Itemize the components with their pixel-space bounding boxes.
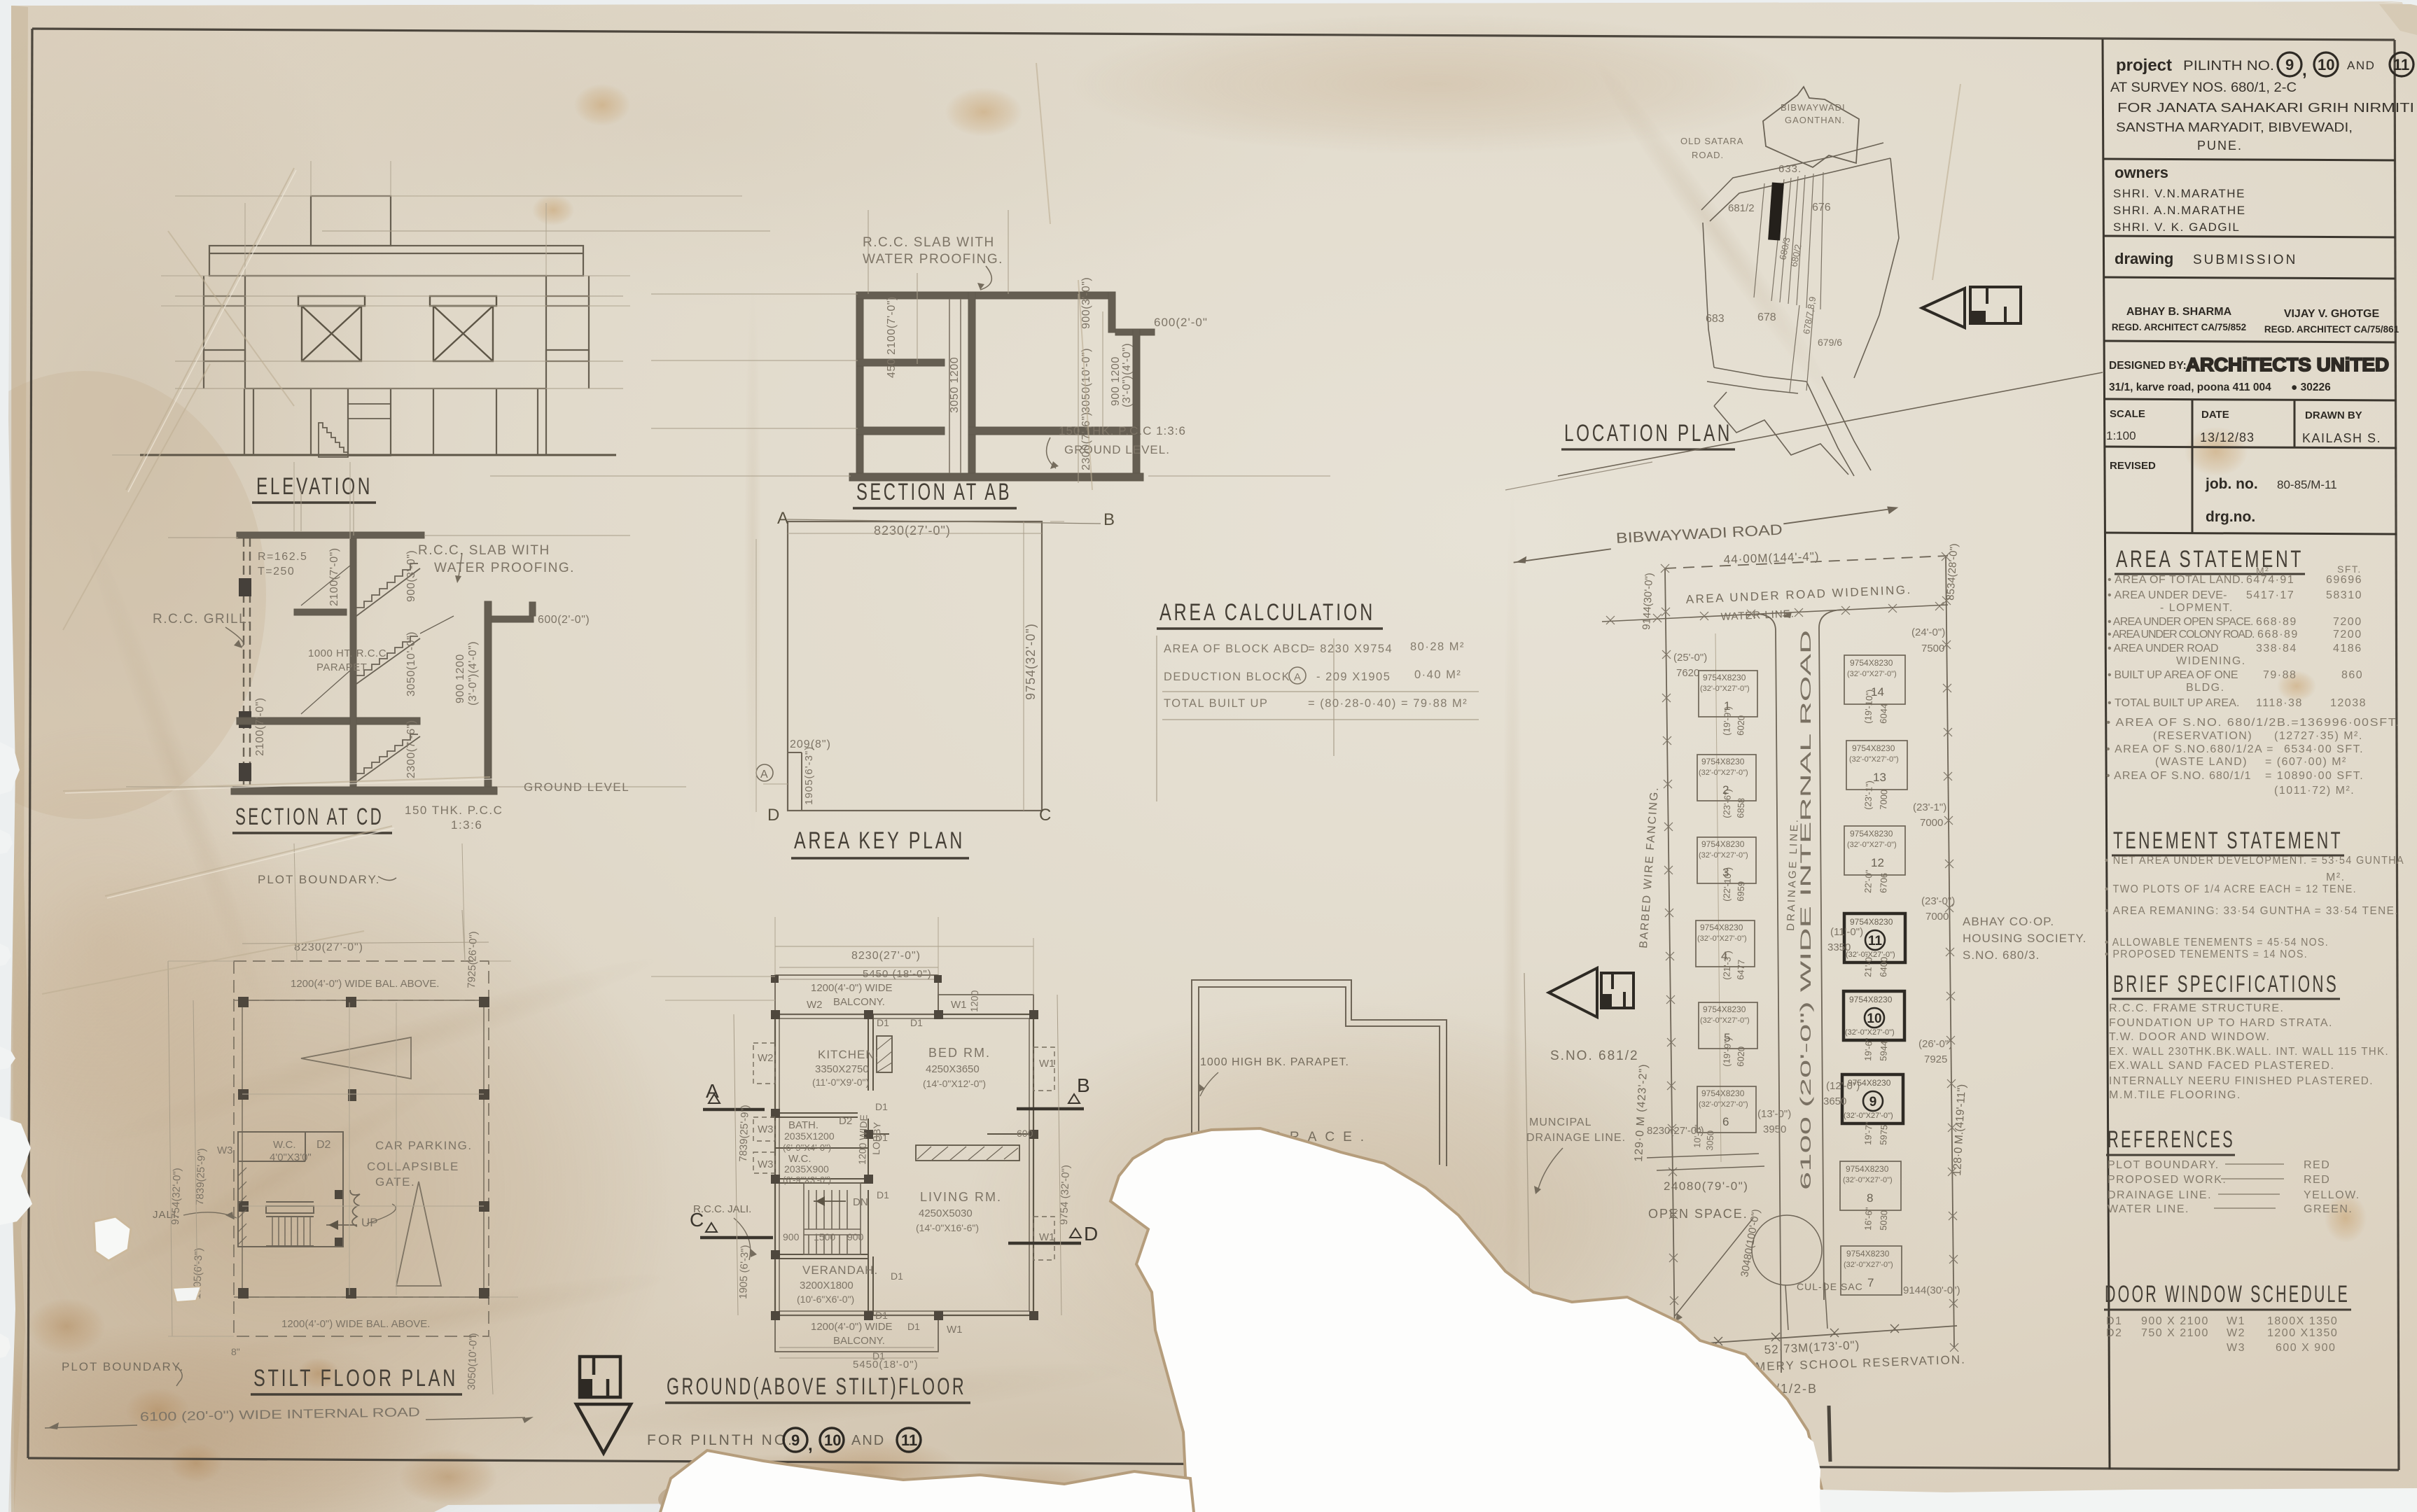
svg-text:- LOPMENT.: - LOPMENT.	[2160, 602, 2234, 614]
svg-text:job. no.: job. no.	[2205, 476, 2258, 492]
svg-text:(32'-0"X27'-0"): (32'-0"X27'-0")	[1847, 670, 1897, 678]
svg-text:79·88: 79·88	[2263, 669, 2297, 681]
svg-text:(6'-9"X3'-0"): (6'-9"X3'-0")	[783, 1175, 831, 1185]
svg-text:BALCONY.: BALCONY.	[833, 996, 885, 1008]
svg-text:7839(25'-9"): 7839(25'-9")	[737, 1105, 751, 1162]
svg-text:6100 (20'-0") WIDE INTERNAL: 6100 (20'-0") WIDE INTERNAL ROAD	[1798, 630, 1814, 1190]
svg-text:19'-7": 19'-7"	[1862, 1121, 1874, 1145]
svg-text:(6'-9"X4'-0"): (6'-9"X4'-0")	[783, 1142, 831, 1153]
svg-text:drawing: drawing	[2115, 250, 2173, 267]
svg-text:SECTION AT CD: SECTION AT CD	[235, 804, 384, 830]
svg-text:(12727·35) M².: (12727·35) M².	[2274, 730, 2363, 742]
svg-text:9754X8230: 9754X8230	[1703, 1004, 1746, 1014]
svg-text:DEDUCTION BLOCK: DEDUCTION BLOCK	[1164, 671, 1290, 683]
svg-text:1200(4'-0") WIDE: 1200(4'-0") WIDE	[811, 1321, 893, 1333]
svg-text:REGD. ARCHITECT CA/75/852: REGD. ARCHITECT CA/75/852	[2112, 322, 2246, 332]
svg-text:9754(32'-0"): 9754(32'-0")	[1024, 623, 1038, 700]
svg-text:150 THK. P.C.C: 150 THK. P.C.C	[405, 804, 503, 817]
svg-text:(32'-0"X27'-0"): (32'-0"X27'-0")	[1844, 1261, 1893, 1269]
svg-text:AND: AND	[851, 1433, 885, 1448]
svg-text:CAR PARKING.: CAR PARKING.	[375, 1139, 473, 1152]
svg-text:AREA CALCULATION: AREA CALCULATION	[1159, 599, 1375, 626]
svg-text:(23'-6"): (23'-6")	[1721, 789, 1733, 819]
svg-text:31/1, karve road, poona 411 00: 31/1, karve road, poona 411 004	[2109, 381, 2271, 393]
svg-text:600(2'-0": 600(2'-0"	[1154, 316, 1208, 329]
svg-text:150 THK. P.C.C 1:3:6: 150 THK. P.C.C 1:3:6	[1059, 424, 1186, 437]
svg-text:6044: 6044	[1878, 703, 1889, 724]
svg-text:DRAINAGE LINE.: DRAINAGE LINE.	[1526, 1132, 1626, 1144]
svg-text:FOR JANATA SAHAKARI GRIH: FOR JANATA SAHAKARI GRIH NIRMITI	[2117, 101, 2414, 115]
svg-text:4'0"X3'0": 4'0"X3'0"	[270, 1151, 312, 1163]
svg-text:MUNCIPAL: MUNCIPAL	[1529, 1116, 1592, 1128]
svg-text:SHRI. V.N.MARATHE: SHRI. V.N.MARATHE	[2113, 187, 2245, 200]
svg-text:PLOT BOUNDARY.: PLOT BOUNDARY.	[62, 1360, 184, 1373]
svg-text:10'-0": 10'-0"	[1692, 1124, 1704, 1148]
svg-text:BIBWAYWADI: BIBWAYWADI	[1781, 102, 1846, 113]
svg-text:6959: 6959	[1735, 881, 1746, 902]
svg-text:(21'-3"): (21'-3")	[1721, 951, 1733, 981]
svg-text:M.M.TILE FLOORING.: M.M.TILE FLOORING.	[2109, 1089, 2241, 1101]
svg-text:GREEN.: GREEN.	[2304, 1203, 2353, 1215]
svg-text:7200: 7200	[2333, 629, 2362, 640]
svg-text:(32'-0"X27'-0"): (32'-0"X27'-0")	[1844, 1112, 1893, 1120]
svg-text:2035X900: 2035X900	[784, 1163, 829, 1175]
svg-text:W1: W1	[947, 1324, 963, 1336]
svg-text:8: 8	[1867, 1191, 1873, 1205]
svg-text:• AREA REMANING: 33·54 GUNTHA: • AREA REMANING: 33·54 GUNTHA = 33·54 TE…	[2105, 905, 2399, 917]
svg-text:W3: W3	[758, 1123, 774, 1135]
svg-text:BLDG.: BLDG.	[2186, 682, 2225, 694]
svg-text:W3: W3	[758, 1158, 774, 1170]
svg-text:W1: W1	[2227, 1315, 2245, 1327]
svg-text:(23'-1"): (23'-1")	[1862, 780, 1874, 811]
svg-text:TENEMENT STATEMENT: TENEMENT STATEMENT	[2113, 827, 2343, 854]
svg-text:AND: AND	[2347, 59, 2375, 72]
svg-text:9754X8230: 9754X8230	[1846, 1164, 1889, 1174]
svg-text:- 209 X1905: - 209 X1905	[1316, 671, 1391, 683]
svg-text:VIJAY V. GHOTGE: VIJAY V. GHOTGE	[2284, 308, 2380, 320]
svg-text:AT SURVEY NOS. 680/1, 2-C: AT SURVEY NOS. 680/1, 2-C	[2110, 80, 2297, 95]
svg-text:WATER LINE.: WATER LINE.	[2108, 1203, 2189, 1215]
svg-text:= 8230 X9754: = 8230 X9754	[1308, 643, 1393, 655]
svg-text:900 X 2100: 900 X 2100	[2141, 1315, 2209, 1327]
svg-text:(19'-9"): (19'-9")	[1721, 706, 1733, 736]
svg-text:= (607·00) M²: = (607·00) M²	[2265, 756, 2347, 768]
svg-text:ABHAY CO·OP.: ABHAY CO·OP.	[1963, 915, 2054, 928]
svg-text:S.NO. 681/2: S.NO. 681/2	[1550, 1049, 1639, 1063]
svg-text:W2: W2	[807, 999, 823, 1011]
svg-text:(14'-0"X12'-0"): (14'-0"X12'-0")	[923, 1078, 986, 1089]
svg-text:OPEN SPACE.: OPEN SPACE.	[1648, 1207, 1748, 1221]
svg-text:3350: 3350	[1827, 941, 1851, 953]
svg-text:5450(18'-0"): 5450(18'-0")	[853, 1359, 919, 1371]
svg-text:(11'-0"): (11'-0")	[1830, 926, 1863, 938]
svg-text:24080(79'-0"): 24080(79'-0")	[1664, 1179, 1748, 1193]
svg-text:9754X8230: 9754X8230	[1703, 673, 1746, 682]
svg-text:2035X1200: 2035X1200	[784, 1130, 835, 1142]
svg-text:9754X8230: 9754X8230	[1701, 839, 1745, 849]
svg-text:A: A	[1294, 671, 1301, 683]
svg-text:PARAPET: PARAPET	[316, 661, 367, 673]
svg-text:(13'-0"): (13'-0")	[1757, 1108, 1791, 1120]
svg-text:SUBMISSION: SUBMISSION	[2193, 253, 2297, 267]
svg-text:13: 13	[1873, 771, 1886, 784]
svg-text:7000: 7000	[1920, 817, 1943, 829]
svg-text:7500: 7500	[1921, 643, 1944, 654]
svg-text:DOOR WINDOW SCHEDULE: DOOR WINDOW SCHEDULE	[2105, 1281, 2350, 1308]
svg-text:21'-0": 21'-0"	[1862, 953, 1874, 977]
svg-text:D1: D1	[875, 1310, 888, 1321]
svg-text:16'-6": 16'-6"	[1862, 1207, 1874, 1231]
svg-text:5417·17: 5417·17	[2246, 589, 2294, 601]
svg-text:LOCATION PLAN: LOCATION PLAN	[1564, 420, 1732, 447]
svg-text:B: B	[1103, 510, 1115, 529]
svg-text:(32'-0"X27'-0"): (32'-0"X27'-0")	[1699, 851, 1748, 860]
svg-text:T=250: T=250	[258, 566, 295, 577]
svg-text:REFERENCES: REFERENCES	[2108, 1126, 2235, 1153]
svg-text:(24'-0"): (24'-0")	[1911, 626, 1945, 638]
svg-text:11: 11	[1868, 934, 1883, 948]
svg-text:1200 WIDE: 1200 WIDE	[856, 1114, 869, 1165]
svg-text:5030: 5030	[1878, 1210, 1889, 1231]
svg-text:6858: 6858	[1735, 797, 1746, 818]
svg-text:6400: 6400	[1878, 956, 1889, 977]
svg-text:D2: D2	[316, 1139, 331, 1151]
svg-text:(12'-0"): (12'-0")	[1826, 1080, 1860, 1092]
svg-text:7925: 7925	[1924, 1053, 1947, 1065]
svg-text:D1: D1	[891, 1270, 903, 1282]
svg-text:58310: 58310	[2326, 589, 2362, 601]
svg-text:ELEVATION: ELEVATION	[256, 473, 372, 500]
svg-text:668·89: 668·89	[2256, 616, 2297, 628]
svg-text:• TWO PLOTS OF 1/4 ACRE EACH: • TWO PLOTS OF 1/4 ACRE EACH = 12 TENE.	[2105, 883, 2357, 895]
svg-text:4186: 4186	[2333, 643, 2362, 654]
svg-text:9: 9	[2285, 56, 2294, 73]
svg-text:DRAWN BY: DRAWN BY	[2305, 409, 2362, 421]
svg-text:1200(4'-0") WIDE BAL. ABOVE.: 1200(4'-0") WIDE BAL. ABOVE.	[281, 1318, 430, 1330]
svg-text:D1: D1	[2106, 1315, 2122, 1327]
svg-text:1800X 1350: 1800X 1350	[2267, 1315, 2338, 1327]
svg-text:2100(7'-0"): 2100(7'-0")	[328, 547, 340, 606]
svg-text:W1: W1	[1039, 1058, 1055, 1070]
svg-text:10: 10	[1867, 1011, 1881, 1026]
svg-text:INTERNALLY NEERU FINISHED PLAS: INTERNALLY NEERU FINISHED PLASTERED.	[2109, 1075, 2374, 1087]
svg-text:W.C.: W.C.	[273, 1139, 296, 1151]
svg-text:676: 676	[1812, 202, 1831, 213]
svg-text:9754X8230: 9754X8230	[1701, 757, 1745, 766]
svg-text:(14'-0"X16'-6"): (14'-0"X16'-6")	[916, 1222, 979, 1233]
svg-text:9754(32'-0"): 9754(32'-0")	[169, 1168, 183, 1225]
svg-text:3950: 3950	[1763, 1123, 1786, 1135]
svg-text:R.C.C. SLAB WITH: R.C.C. SLAB WITH	[863, 235, 995, 250]
svg-text:ABHAY B. SHARMA: ABHAY B. SHARMA	[2126, 306, 2232, 318]
svg-text:900(3'-0"): 900(3'-0")	[1080, 277, 1092, 329]
svg-text:1905 (6'-3"): 1905 (6'-3")	[737, 1245, 751, 1299]
svg-text:• TOTAL BUILT UP AREA.: • TOTAL BUILT UP AREA.	[2108, 697, 2241, 709]
svg-text:BALCONY.: BALCONY.	[833, 1335, 885, 1347]
svg-text:(11'-0"X9'-0"): (11'-0"X9'-0")	[812, 1077, 869, 1088]
svg-text:1200: 1200	[968, 990, 980, 1012]
svg-text:2100(7'-0"): 2100(7'-0")	[254, 697, 266, 756]
svg-text:6477: 6477	[1735, 959, 1746, 980]
svg-text:2300(7'-6"): 2300(7'-6")	[405, 720, 417, 778]
svg-text:AREA OF BLOCK ABCD: AREA OF BLOCK ABCD	[1164, 643, 1310, 655]
svg-text:R.C.C. FRAME STRUCTURE.: R.C.C. FRAME STRUCTURE.	[2109, 1002, 2285, 1014]
svg-text:633.: 633.	[1778, 163, 1802, 175]
svg-text:W1: W1	[1039, 1231, 1055, 1243]
svg-text:W3: W3	[2227, 1342, 2245, 1354]
svg-text:PILINTH NO.: PILINTH NO.	[2183, 59, 2274, 73]
svg-text:(10'-6"X6'-0"): (10'-6"X6'-0")	[797, 1294, 854, 1305]
svg-text:11: 11	[2393, 56, 2409, 73]
svg-text:SECTION AT AB: SECTION AT AB	[856, 479, 1012, 505]
svg-text:1200(4'-0") WIDE: 1200(4'-0") WIDE	[811, 982, 893, 994]
svg-text:7925(26'-0"): 7925(26'-0")	[466, 931, 480, 988]
svg-text:SFT.: SFT.	[2337, 563, 2362, 575]
svg-text:9754X8230: 9754X8230	[1701, 1088, 1745, 1098]
svg-text:D2: D2	[2106, 1327, 2122, 1339]
svg-text:M².: M².	[2326, 871, 2346, 883]
svg-text:6474·91: 6474·91	[2246, 574, 2294, 586]
svg-text:,: ,	[2302, 61, 2307, 80]
svg-text:FOR PILNTH NO.: FOR PILNTH NO.	[647, 1432, 794, 1448]
svg-text:683: 683	[1706, 313, 1725, 325]
svg-text:1200 X1350: 1200 X1350	[2267, 1327, 2338, 1339]
svg-text:ARCHiTECTS UNiTED: ARCHiTECTS UNiTED	[2186, 354, 2389, 375]
svg-text:(32'-0"X27'-0"): (32'-0"X27'-0")	[1847, 841, 1897, 849]
svg-text:900: 900	[847, 1231, 864, 1242]
svg-text:PLOT BOUNDARY.: PLOT BOUNDARY.	[2108, 1159, 2220, 1171]
svg-text:750 X 2100: 750 X 2100	[2141, 1327, 2209, 1339]
svg-text:9754X8230: 9754X8230	[1846, 1249, 1890, 1259]
svg-text:(RESERVATION): (RESERVATION)	[2153, 730, 2252, 742]
svg-text:• AREA UNDER OPEN SPACE.: • AREA UNDER OPEN SPACE.	[2108, 616, 2255, 628]
svg-text:(19'-9"): (19'-9")	[1721, 1037, 1733, 1067]
svg-text:HOUSING SOCIETY.: HOUSING SOCIETY.	[1963, 932, 2087, 945]
svg-text:LOBBY: LOBBY	[870, 1121, 883, 1155]
svg-text:BRIEF SPECIFICATIONS: BRIEF SPECIFICATIONS	[2113, 971, 2339, 997]
svg-text:C: C	[690, 1209, 704, 1231]
svg-text:8": 8"	[231, 1346, 240, 1357]
svg-text:7: 7	[1867, 1276, 1874, 1289]
svg-text:4250X5030: 4250X5030	[919, 1207, 973, 1219]
svg-text:STILT FLOOR PLAN: STILT FLOOR PLAN	[253, 1365, 458, 1392]
svg-text:(WASTE LAND): (WASTE LAND)	[2155, 756, 2248, 768]
svg-text:• BUILT UP AREA OF ONE: • BUILT UP AREA OF ONE	[2108, 669, 2239, 681]
svg-text:900 1200: 900 1200	[1110, 356, 1122, 406]
svg-text:5944: 5944	[1878, 1040, 1889, 1061]
svg-text:D1: D1	[875, 1101, 888, 1112]
svg-text:9754X8230: 9754X8230	[1850, 658, 1893, 668]
svg-text:D1: D1	[877, 1189, 889, 1200]
svg-text:W2: W2	[2227, 1327, 2245, 1339]
svg-text:3050 1200: 3050 1200	[949, 357, 961, 413]
svg-text:SHRI. V. K. GADGIL: SHRI. V. K. GADGIL	[2113, 220, 2240, 234]
svg-text:W1: W1	[951, 999, 967, 1011]
svg-text:• NET AREA UNDER DEVELOPMENT.: • NET AREA UNDER DEVELOPMENT. = 53·54 GU…	[2105, 855, 2404, 867]
svg-text:5450 (18'-0"): 5450 (18'-0")	[863, 968, 932, 980]
svg-text:● 30226: ● 30226	[2291, 381, 2331, 393]
svg-text:1500: 1500	[814, 1231, 835, 1242]
svg-text:3050: 3050	[1704, 1130, 1715, 1151]
svg-text:B: B	[1077, 1074, 1090, 1096]
svg-text:DESIGNED BY:: DESIGNED BY:	[2109, 360, 2187, 372]
svg-text:(22'-10"): (22'-10")	[1721, 867, 1734, 902]
svg-text:6020: 6020	[1735, 715, 1746, 736]
svg-text:GAONTHAN.: GAONTHAN.	[1785, 115, 1845, 125]
svg-text:8230(27'-0"): 8230(27'-0")	[851, 950, 921, 962]
svg-text:7000: 7000	[1925, 911, 1949, 923]
svg-text:9754X8230: 9754X8230	[1700, 923, 1743, 932]
svg-text:DRAINAGE LINE.: DRAINAGE LINE.	[2108, 1189, 2212, 1201]
svg-text:RED: RED	[2304, 1159, 2330, 1171]
svg-text:R.C.C. GRILL.: R.C.C. GRILL.	[153, 612, 252, 626]
svg-text:EX. WALL 230THK.BK.WALL. INT.: EX. WALL 230THK.BK.WALL. INT. WALL 115 T…	[2109, 1046, 2389, 1058]
svg-text:,: ,	[808, 1436, 813, 1455]
svg-text:5975: 5975	[1878, 1124, 1889, 1145]
svg-text:1:3:6: 1:3:6	[451, 818, 482, 832]
svg-text:9: 9	[791, 1431, 800, 1449]
svg-text:10: 10	[2318, 56, 2334, 73]
svg-text:(23'-1"): (23'-1")	[1913, 801, 1946, 813]
svg-text:FOUNDATION UP TO HARD STRATA.: FOUNDATION UP TO HARD STRATA.	[2109, 1017, 2333, 1029]
svg-text:DATE: DATE	[2201, 409, 2229, 421]
svg-text:860: 860	[2341, 669, 2363, 681]
svg-text:BED RM.: BED RM.	[928, 1046, 991, 1060]
svg-text:RED: RED	[2304, 1174, 2330, 1186]
svg-text:3650: 3650	[1823, 1095, 1846, 1107]
svg-text:600: 600	[1017, 1128, 1033, 1139]
svg-text:7000: 7000	[1878, 789, 1889, 810]
svg-text:1000 HT. R.C.C: 1000 HT. R.C.C	[308, 647, 386, 659]
svg-text:WIDENING.: WIDENING.	[2176, 655, 2246, 667]
svg-text:600(2'-0"): 600(2'-0")	[538, 614, 590, 626]
svg-text:A: A	[777, 509, 788, 528]
svg-text:11: 11	[901, 1431, 917, 1449]
svg-text:679/6: 679/6	[1818, 337, 1842, 348]
svg-text:D: D	[767, 806, 779, 825]
svg-text:3050(10'-0"): 3050(10'-0")	[466, 1333, 480, 1390]
svg-text:• AREA OF S.NO. 680/1/1: • AREA OF S.NO. 680/1/1	[2106, 770, 2252, 782]
svg-text:VERANDAH.: VERANDAH.	[802, 1263, 878, 1277]
svg-text:(1011·72) M².: (1011·72) M².	[2274, 785, 2355, 797]
svg-text:TOTAL BUILT UP: TOTAL BUILT UP	[1164, 697, 1268, 710]
svg-text:• AREA OF S.NO.680/1/2A =: • AREA OF S.NO.680/1/2A =	[2106, 743, 2274, 755]
svg-text:WATER PROOFING.: WATER PROOFING.	[434, 561, 575, 575]
svg-text:• AREA UNDER COLONY ROAD.: • AREA UNDER COLONY ROAD.	[2108, 629, 2256, 640]
svg-text:• ALLOWABLE TENEMENTS = 45·54: • ALLOWABLE TENEMENTS = 45·54 NOS.	[2105, 937, 2329, 948]
svg-text:3200X1800: 3200X1800	[800, 1280, 854, 1291]
svg-text:R.C.C. SLAB WITH: R.C.C. SLAB WITH	[418, 543, 550, 558]
svg-text:OLD SATARA: OLD SATARA	[1680, 136, 1743, 146]
svg-text:YELLOW.: YELLOW.	[2304, 1189, 2360, 1201]
svg-text:681/2: 681/2	[1728, 202, 1755, 214]
svg-text:GROUND(ABOVE STILT)FLOOR: GROUND(ABOVE STILT)FLOOR	[667, 1373, 966, 1400]
svg-text:W2: W2	[758, 1052, 774, 1064]
svg-text:22'-0": 22'-0"	[1862, 869, 1874, 893]
svg-text:6706: 6706	[1878, 872, 1889, 893]
svg-text:(3'-0")(4'-0"): (3'-0")(4'-0")	[1121, 343, 1133, 407]
svg-text:1:100: 1:100	[2106, 429, 2136, 442]
svg-text:owners: owners	[2115, 164, 2168, 181]
svg-text:PUNE.: PUNE.	[2197, 139, 2243, 153]
svg-text:(32'-0"X27'-0"): (32'-0"X27'-0")	[1699, 1100, 1748, 1109]
svg-text:1200(4'-0") WIDE BAL. ABOVE.: 1200(4'-0") WIDE BAL. ABOVE.	[291, 978, 439, 990]
svg-text:GATE.: GATE.	[375, 1175, 415, 1189]
svg-text:1000 HIGH BK. PARAPET.: 1000 HIGH BK. PARAPET.	[1200, 1056, 1349, 1068]
svg-text:• AREA OF TOTAL LAND.: • AREA OF TOTAL LAND.	[2108, 574, 2245, 586]
svg-text:0·40 M²: 0·40 M²	[1414, 668, 1461, 681]
svg-text:PLOT BOUNDARY.: PLOT BOUNDARY.	[258, 873, 380, 886]
svg-text:9: 9	[1869, 1095, 1877, 1109]
svg-text:KITCHEN.: KITCHEN.	[818, 1048, 879, 1061]
svg-text:• AREA UNDER DEVE-: • AREA UNDER DEVE-	[2108, 589, 2228, 601]
svg-text:SHRI. A.N.MARATHE: SHRI. A.N.MARATHE	[2113, 204, 2246, 217]
svg-text:900: 900	[783, 1231, 800, 1242]
svg-text:8230(27'-0"): 8230(27'-0")	[874, 524, 951, 538]
svg-text:900 1200: 900 1200	[454, 654, 466, 703]
svg-text:WATER PROOFING.: WATER PROOFING.	[863, 252, 1003, 267]
svg-text:(32'-0"X27'-0"): (32'-0"X27'-0")	[1700, 1016, 1750, 1025]
svg-text:project: project	[2116, 56, 2172, 75]
svg-text:D1: D1	[877, 1017, 889, 1028]
svg-text:S.NO. 680/3.: S.NO. 680/3.	[1963, 948, 2040, 962]
svg-text:D1: D1	[910, 1017, 923, 1028]
svg-text:W3: W3	[217, 1144, 233, 1156]
svg-text:• PROPOSED TENEMENTS = 14 NO: • PROPOSED TENEMENTS = 14 NOS.	[2105, 948, 2308, 960]
svg-text:12: 12	[1871, 856, 1884, 869]
svg-text:C: C	[1039, 806, 1051, 825]
svg-text:KAILASH S.: KAILASH S.	[2302, 431, 2381, 445]
svg-text:13/12/83: 13/12/83	[2200, 430, 2255, 444]
svg-text:80-85/M-11: 80-85/M-11	[2277, 478, 2337, 491]
svg-text:EX.WALL SAND FACED PLASTERED.: EX.WALL SAND FACED PLASTERED.	[2109, 1060, 2334, 1072]
svg-text:(32'-0"X27'-0"): (32'-0"X27'-0")	[1843, 1176, 1893, 1184]
svg-text:600 X 900: 600 X 900	[2276, 1342, 2336, 1354]
svg-text:7620: 7620	[1676, 667, 1699, 679]
svg-text:(32'-0"X27'-0"): (32'-0"X27'-0")	[1699, 769, 1748, 777]
svg-text:1905(6'-3"): 1905(6'-3")	[803, 746, 815, 805]
svg-text:R=162.5: R=162.5	[258, 551, 307, 563]
svg-text:6: 6	[1722, 1115, 1729, 1128]
svg-text:= 10890·00 SFT.: = 10890·00 SFT.	[2265, 770, 2364, 782]
svg-text:6020: 6020	[1735, 1046, 1746, 1067]
svg-text:80·28 M²: 80·28 M²	[1410, 640, 1465, 653]
svg-text:D2: D2	[839, 1115, 852, 1127]
svg-text:AREA KEY PLAN: AREA KEY PLAN	[794, 827, 965, 854]
svg-text:69696: 69696	[2326, 574, 2362, 586]
svg-text:(23'-0"): (23'-0")	[1921, 895, 1955, 907]
svg-text:3350X2750: 3350X2750	[815, 1063, 869, 1075]
svg-text:DN: DN	[853, 1196, 868, 1208]
svg-text:900(3'-0"): 900(3'-0")	[405, 550, 417, 602]
svg-text:3050(10'-0"): 3050(10'-0")	[405, 631, 417, 696]
svg-text:drg.no.: drg.no.	[2206, 509, 2255, 525]
svg-text:D: D	[1084, 1223, 1098, 1245]
svg-text:450 2100(7'-0"): 450 2100(7'-0")	[886, 296, 898, 378]
svg-text:SANSTHA MARYADIT, BIBVEWADI,: SANSTHA MARYADIT, BIBVEWADI,	[2116, 120, 2353, 134]
svg-text:A: A	[760, 769, 768, 780]
svg-text:ROAD.: ROAD.	[1692, 150, 1724, 160]
svg-text:D1: D1	[907, 1321, 920, 1332]
svg-text:(32'-0"X27'-0"): (32'-0"X27'-0")	[1849, 755, 1899, 764]
svg-text:1118·38: 1118·38	[2256, 697, 2303, 709]
svg-text:9754X8230: 9754X8230	[1852, 743, 1895, 753]
svg-text:PROPOSED WORK.: PROPOSED WORK.	[2108, 1174, 2227, 1186]
svg-text:COLLAPSIBLE: COLLAPSIBLE	[367, 1160, 459, 1173]
svg-text:9754X8230: 9754X8230	[1850, 917, 1893, 927]
svg-text:T.W. DOOR AND WINDOW.: T.W. DOOR AND WINDOW.	[2109, 1031, 2271, 1043]
